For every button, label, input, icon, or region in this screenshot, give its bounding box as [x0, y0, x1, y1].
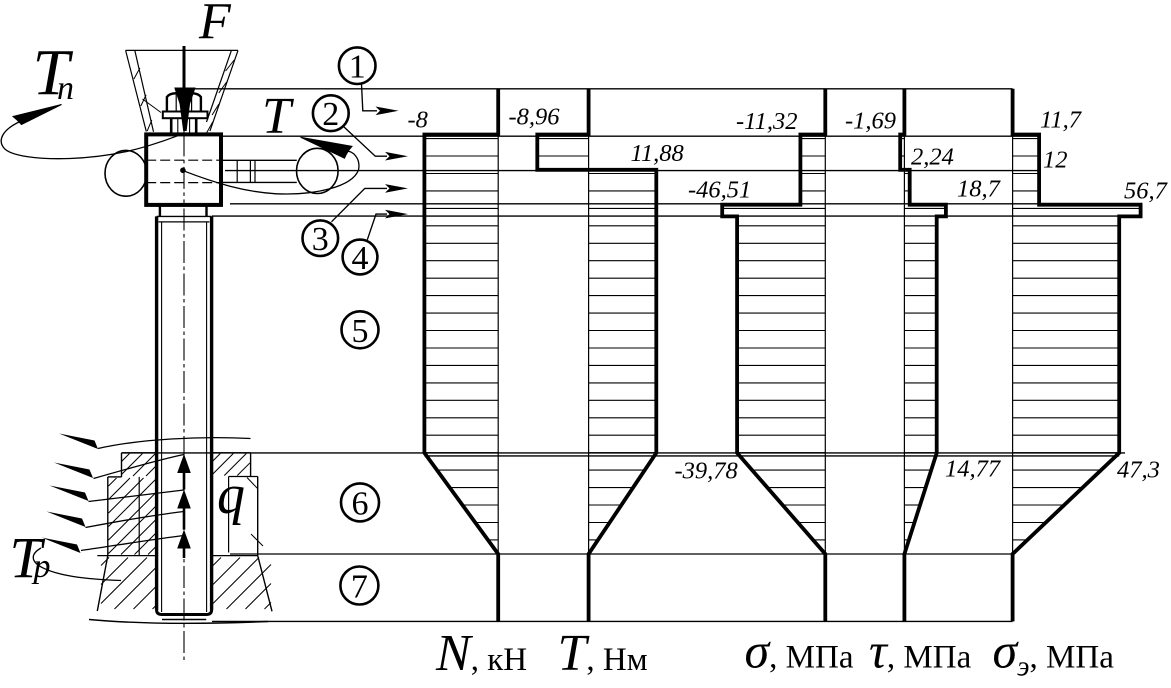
svg-text:6: 6 — [352, 485, 369, 522]
svg-text:47,3: 47,3 — [1117, 457, 1160, 484]
svg-text:-1,69: -1,69 — [845, 108, 896, 135]
svg-text:2: 2 — [322, 96, 339, 133]
svg-text:18,7: 18,7 — [957, 176, 1002, 203]
svg-text:2,24: 2,24 — [911, 144, 954, 171]
svg-text:-46,51: -46,51 — [688, 177, 751, 204]
svg-text:11,88: 11,88 — [631, 140, 684, 167]
svg-text:3: 3 — [312, 221, 329, 258]
svg-text:-39,78: -39,78 — [675, 458, 738, 485]
svg-text:-8: -8 — [408, 107, 428, 134]
svg-text:n: n — [57, 70, 74, 107]
svg-text:-8,96: -8,96 — [509, 104, 561, 131]
svg-text:5: 5 — [352, 313, 369, 350]
svg-text:1: 1 — [349, 49, 366, 86]
svg-text:12: 12 — [1043, 147, 1068, 174]
svg-text:4: 4 — [352, 240, 369, 277]
svg-text:7: 7 — [351, 569, 368, 606]
svg-text:11,7: 11,7 — [1040, 107, 1083, 134]
svg-text:-11,32: -11,32 — [736, 108, 797, 135]
svg-text:14,77: 14,77 — [945, 456, 1002, 483]
svg-text:q: q — [217, 464, 245, 526]
svg-text:56,7: 56,7 — [1124, 178, 1169, 205]
svg-text:F: F — [198, 0, 232, 51]
svg-text:T: T — [262, 88, 294, 145]
